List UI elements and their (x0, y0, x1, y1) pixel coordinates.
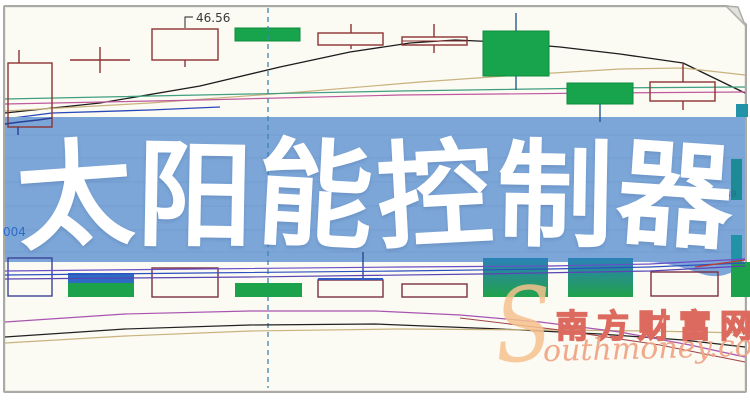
watermark-site-url: outhmoney.com (543, 328, 750, 369)
price-leader-line (185, 17, 193, 28)
volume-bar (731, 262, 750, 297)
candlestick-green (483, 31, 549, 76)
ma-line-top (5, 68, 745, 111)
edge-candle (736, 104, 748, 117)
label-price-marker: 46.56 (196, 11, 230, 25)
ma-line-top (5, 92, 745, 104)
volume-bar (68, 283, 134, 297)
volume-bar-hollow (318, 280, 383, 297)
banner-title-char: 阳 (136, 138, 254, 256)
volume-bar-hollow (402, 284, 467, 297)
candlestick-green (567, 83, 633, 104)
banner-title-char: 太 (13, 135, 137, 259)
banner-title: 太阳能控制器 (5, 117, 745, 263)
volume-bar-hollow (651, 272, 718, 296)
banner-title-char: 器 (613, 135, 737, 259)
banner-title-char: 制 (496, 138, 614, 256)
promo-image: { "page": {"width": 750, "height": 400, … (0, 0, 750, 400)
candlestick-hollow (650, 82, 715, 101)
banner-title-char: 能 (254, 136, 376, 258)
candlestick-hollow (318, 33, 383, 45)
banner-title-char: 控 (374, 136, 496, 258)
candlestick-hollow (152, 29, 218, 60)
volume-bar (235, 283, 302, 297)
